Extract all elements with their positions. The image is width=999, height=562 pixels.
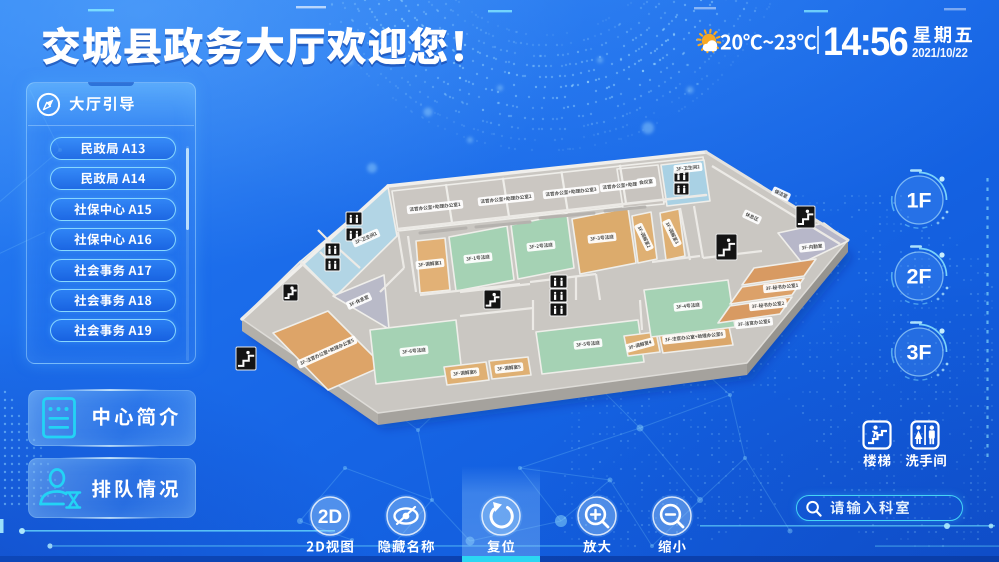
svg-text:2F: 2F xyxy=(906,264,931,288)
svg-text:1F: 1F xyxy=(906,189,931,213)
svg-text:2D: 2D xyxy=(318,507,342,528)
svg-text:3F: 3F xyxy=(906,341,931,365)
